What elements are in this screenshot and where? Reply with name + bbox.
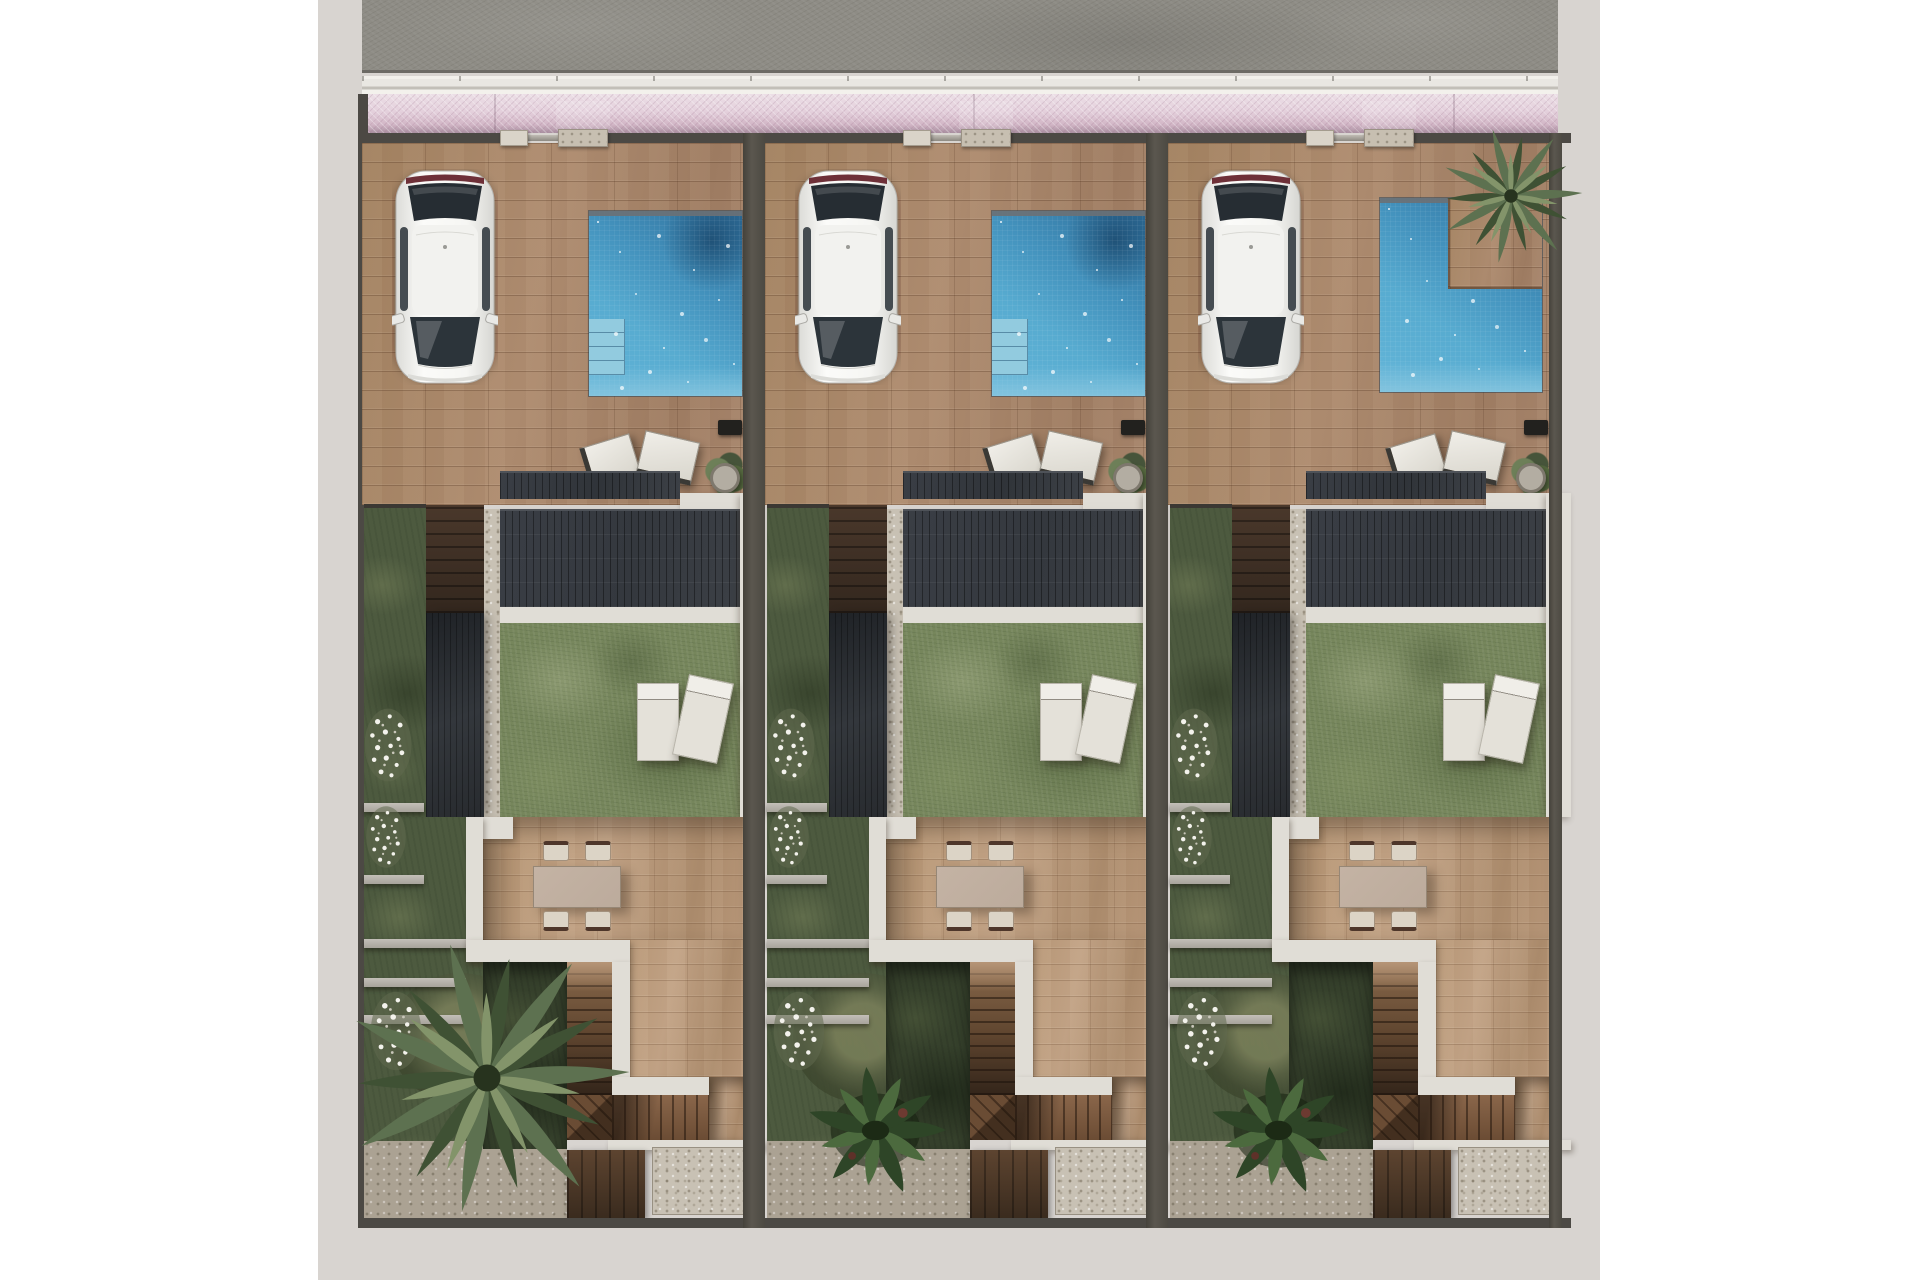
entrance-mat bbox=[556, 101, 610, 129]
dining-chair bbox=[1391, 841, 1417, 861]
roof-upper-section bbox=[1306, 471, 1486, 499]
dining-chair bbox=[988, 841, 1014, 861]
parked-car-top-view bbox=[392, 169, 498, 385]
stair-side-wall bbox=[1418, 962, 1436, 1077]
wall-mounted-unit bbox=[1524, 420, 1548, 435]
side-wing-deck bbox=[426, 505, 484, 613]
garden-step bbox=[364, 875, 424, 884]
rear-garden-flora bbox=[1176, 1033, 1381, 1228]
terrace-corner-wall bbox=[483, 817, 513, 839]
rear-walkway bbox=[498, 607, 744, 623]
wall-mounted-unit bbox=[1121, 420, 1145, 435]
potted-plant bbox=[710, 463, 740, 493]
garden-step bbox=[1170, 939, 1272, 948]
white-flower-bush bbox=[765, 703, 817, 787]
gate-pier-large bbox=[558, 129, 608, 147]
dining-table bbox=[533, 866, 621, 908]
roof-upper-section bbox=[500, 471, 680, 499]
parked-car-top-view bbox=[795, 169, 901, 385]
lower-gravel-patch bbox=[1055, 1147, 1147, 1215]
gravel-side-path bbox=[887, 509, 903, 817]
stair-side-wall bbox=[1418, 1077, 1515, 1095]
villa-3 bbox=[1168, 133, 1571, 1228]
roof-parapet bbox=[680, 493, 740, 510]
patio-terrace-shaded bbox=[1515, 1077, 1549, 1141]
gate-pier-small bbox=[1306, 130, 1334, 146]
white-flower-bush bbox=[1170, 801, 1214, 873]
white-flower-bush bbox=[1168, 703, 1220, 787]
party-wall bbox=[1549, 133, 1562, 1228]
gate-pier-large bbox=[961, 129, 1011, 147]
stair-side-wall bbox=[1015, 962, 1033, 1077]
rear-walkway bbox=[901, 607, 1147, 623]
dining-table bbox=[1339, 866, 1427, 908]
gate-pier-large bbox=[1364, 129, 1414, 147]
entrance-mat bbox=[959, 101, 1013, 129]
dining-chair bbox=[988, 911, 1014, 931]
dining-chair bbox=[543, 841, 569, 861]
stairs-lower-flight bbox=[1015, 1095, 1112, 1140]
garden-wall bbox=[869, 940, 1033, 962]
stair-side-wall bbox=[1015, 1077, 1112, 1095]
lower-deck-patch bbox=[970, 1150, 1048, 1218]
roof-parapet bbox=[1083, 493, 1143, 510]
street-curb bbox=[362, 76, 1558, 94]
white-flower-bush bbox=[767, 801, 811, 873]
patio-terrace-shaded bbox=[1112, 1077, 1146, 1141]
terrace-corner-wall bbox=[1289, 817, 1319, 839]
garden-wall bbox=[1272, 940, 1436, 962]
street-wall-right bbox=[1011, 133, 1168, 143]
parked-car-top-view bbox=[1198, 169, 1304, 385]
villa-2 bbox=[765, 133, 1168, 1228]
villas-row bbox=[362, 133, 1558, 1228]
rear-walkway bbox=[1304, 607, 1550, 623]
sidewalk-joint bbox=[494, 94, 496, 133]
white-flower-bush bbox=[362, 703, 414, 787]
street-wall-left bbox=[362, 133, 502, 143]
rear-garden-flora bbox=[773, 1033, 978, 1228]
patio-terrace-shaded bbox=[709, 1077, 743, 1141]
side-wing-deck bbox=[1232, 505, 1290, 613]
water-sparkles bbox=[597, 221, 599, 223]
garden-step bbox=[1170, 875, 1230, 884]
side-wing-deck bbox=[829, 505, 887, 613]
plot-render-area bbox=[362, 0, 1558, 1228]
dining-table bbox=[936, 866, 1024, 908]
dining-chair bbox=[1391, 911, 1417, 931]
garden-step bbox=[767, 978, 869, 987]
side-wing-roof bbox=[426, 613, 484, 817]
potted-plant bbox=[1113, 463, 1143, 493]
roof-parapet bbox=[1486, 493, 1546, 510]
garden-step bbox=[767, 939, 869, 948]
side-wing-roof bbox=[829, 613, 887, 817]
pool-coping bbox=[992, 211, 1145, 216]
dining-chair bbox=[1349, 911, 1375, 931]
street-wall-left bbox=[1168, 133, 1308, 143]
entrance-mat bbox=[1362, 101, 1416, 129]
water-sparkles bbox=[1000, 221, 1002, 223]
large-palm-tree bbox=[337, 928, 637, 1228]
lower-deck-patch bbox=[1373, 1150, 1451, 1218]
dining-chair bbox=[585, 841, 611, 861]
wall-mounted-unit bbox=[718, 420, 742, 435]
solar-panel-roof bbox=[901, 509, 1147, 607]
swimming-pool bbox=[991, 210, 1146, 397]
pool-palm-tree bbox=[1436, 121, 1586, 271]
gravel-side-path bbox=[1290, 509, 1306, 817]
gate-pier-small bbox=[903, 130, 931, 146]
asphalt-road bbox=[362, 0, 1558, 73]
party-wall bbox=[1146, 133, 1168, 1228]
street-wall-right bbox=[608, 133, 765, 143]
solar-panel-roof bbox=[1304, 509, 1550, 607]
side-wing-roof bbox=[1232, 613, 1290, 817]
dining-chair bbox=[946, 911, 972, 931]
garden-step bbox=[767, 875, 827, 884]
lower-gravel-patch bbox=[1458, 1147, 1550, 1215]
gate-pier-small bbox=[500, 130, 528, 146]
roof-upper-section bbox=[903, 471, 1083, 499]
lower-gravel-patch bbox=[652, 1147, 744, 1215]
water-sparkles bbox=[1388, 208, 1390, 210]
pool-coping bbox=[589, 211, 742, 216]
terrace-corner-wall bbox=[886, 817, 916, 839]
swimming-pool bbox=[588, 210, 743, 397]
party-wall bbox=[743, 133, 765, 1228]
garden-step bbox=[1170, 978, 1272, 987]
gravel-side-path bbox=[484, 509, 500, 817]
dining-chair bbox=[946, 841, 972, 861]
site-plan-render bbox=[0, 0, 1920, 1280]
stairs-lower-flight bbox=[1418, 1095, 1515, 1140]
villa-1 bbox=[362, 133, 765, 1228]
potted-plant bbox=[1516, 463, 1546, 493]
street-wall-left bbox=[765, 133, 905, 143]
pool-shallow-ledge bbox=[1380, 362, 1542, 392]
white-flower-bush bbox=[364, 801, 408, 873]
dining-chair bbox=[1349, 841, 1375, 861]
solar-panel-roof bbox=[498, 509, 744, 607]
